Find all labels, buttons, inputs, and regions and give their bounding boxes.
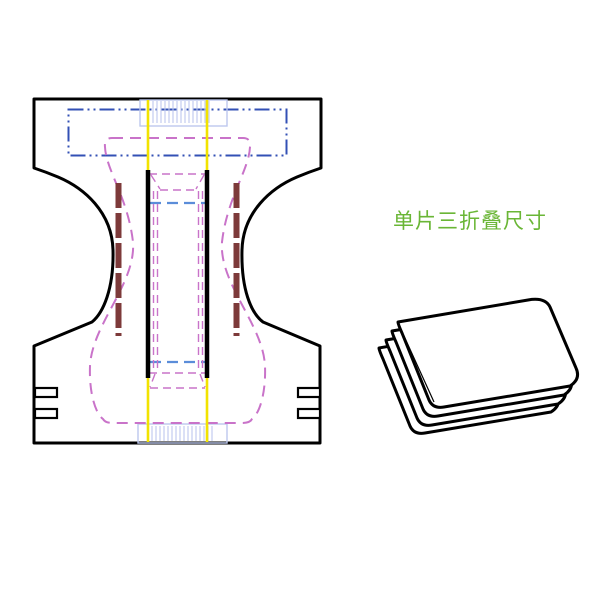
flat-diaper-drawing — [34, 99, 321, 443]
diaper-outline — [34, 99, 321, 443]
trifold-label: 单片三折叠尺寸 — [393, 205, 563, 235]
tape-tab-right-lower — [298, 409, 320, 418]
tape-tab-left-lower — [35, 409, 57, 418]
drawing-canvas: 单片三折叠尺寸 — [0, 0, 600, 600]
tape-tab-left-upper — [35, 388, 57, 397]
tape-tab-right-upper — [298, 388, 320, 397]
folded-pack-drawing — [379, 299, 578, 433]
technical-drawing — [0, 0, 600, 600]
